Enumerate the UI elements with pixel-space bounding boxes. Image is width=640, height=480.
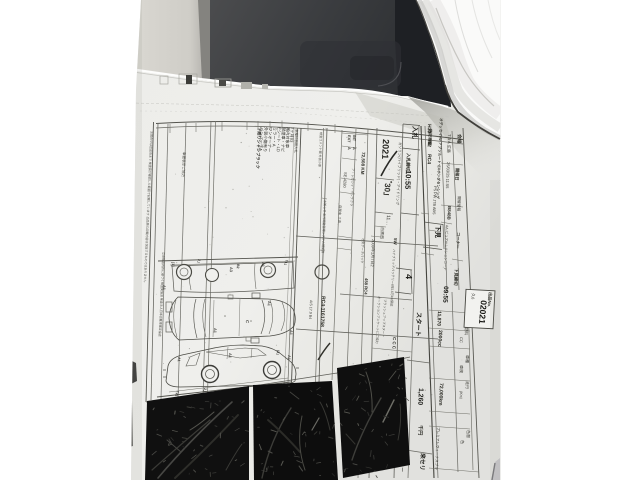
svg-text:(3」: (3」: [276, 350, 280, 357]
svg-text:車検: 車検: [459, 365, 465, 373]
svg-text:色替: 色替: [466, 430, 472, 438]
svg-text:2000cc: 2000cc: [436, 330, 443, 347]
svg-text:2」: 2」: [197, 259, 201, 265]
svg-text:色: 色: [460, 440, 466, 444]
svg-text:A1: A1: [289, 330, 293, 335]
svg-text:A3: A3: [229, 267, 233, 272]
svg-text:白黒西: 白黒西: [379, 227, 386, 239]
svg-text:11,870: 11,870: [435, 311, 442, 326]
svg-text:自税未 リ済: 自税未 リ済: [337, 205, 343, 224]
svg-text:458 RC4: 458 RC4: [363, 278, 369, 295]
svg-text:燃料: 燃料: [464, 327, 470, 335]
svg-text:4: 4: [404, 274, 414, 279]
svg-text:H30: H30: [426, 124, 432, 134]
svg-text:11…: 11…: [385, 215, 391, 225]
svg-text:2009年1月7日2: 2009年1月7日2: [370, 239, 377, 268]
svg-text:[1]: [1]: [171, 262, 175, 267]
svg-text:゙30」: ゙30」: [382, 180, 393, 200]
svg-text:「1」: 「1」: [284, 258, 289, 267]
svg-text:2021: 2021: [380, 139, 391, 160]
svg-text:72,000km: 72,000km: [437, 383, 444, 406]
svg-text:SE-4280: SE-4280: [342, 172, 348, 189]
svg-text:5W: 5W: [393, 238, 398, 246]
svg-text:INT: INT: [352, 135, 356, 142]
svg-text:開催情報: 開催情報: [456, 196, 462, 212]
svg-text:AIS 17.9 B4: AIS 17.9 B4: [308, 300, 313, 319]
svg-text:A1: A1: [261, 262, 265, 267]
svg-text:02021: 02021: [477, 300, 489, 325]
svg-text:走行: 走行: [465, 381, 471, 389]
svg-text:/12: /12: [426, 140, 432, 147]
svg-text:B848B: B848B: [446, 206, 452, 220]
svg-text:A1: A1: [177, 357, 181, 362]
svg-text:スタート: スタート: [414, 312, 423, 337]
svg-text:A1: A1: [228, 353, 232, 358]
svg-text:09:55: 09:55: [441, 286, 449, 303]
svg-text:CC: CC: [459, 337, 464, 343]
svg-text:EXT: EXT: [347, 135, 351, 143]
svg-text:72,508 KM: 72,508 KM: [360, 152, 366, 175]
svg-text:車種: 車種: [465, 355, 471, 363]
svg-text:1,260: 1,260: [416, 388, 424, 406]
svg-text:A: A: [347, 147, 351, 150]
svg-text:(Km): (Km): [459, 391, 463, 399]
svg-text:RC4: RC4: [426, 154, 432, 164]
svg-text:10:55: 10:55: [403, 170, 413, 190]
svg-text:A1: A1: [267, 301, 271, 306]
svg-text:C C C: C C C: [391, 337, 397, 350]
svg-text:A: A: [352, 147, 356, 150]
svg-text:C: C: [245, 320, 250, 323]
svg-text:A1: A1: [213, 328, 217, 333]
svg-text:B2: B2: [236, 264, 240, 269]
svg-text:A1: A1: [287, 355, 291, 360]
